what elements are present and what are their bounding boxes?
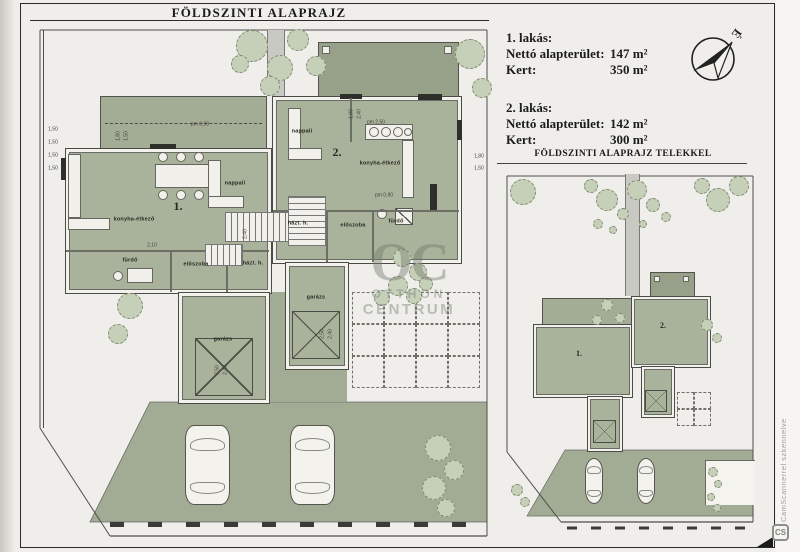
unit-number-label: 2.	[660, 322, 666, 330]
net-area-label: Nettó alapterület:	[506, 116, 610, 132]
info-row: Nettó alapterület: 142 m²	[506, 116, 696, 132]
room-label: házt. h.	[243, 261, 264, 267]
apartment2-info: 2. lakás: Nettó alapterület: 142 m² Kert…	[506, 100, 696, 148]
otthon-centrum-watermark: OC OTTHON CENTRUM	[348, 238, 470, 319]
oc-logo: OC	[348, 238, 470, 287]
room-label: garázs	[307, 295, 326, 301]
dimension-label: 1,50	[474, 167, 484, 172]
dimension-label: 1,50	[48, 128, 58, 133]
room-label: előszoba	[183, 262, 208, 268]
apartment2-name: 2. lakás:	[506, 100, 696, 116]
scanned-page: FÖLDSZINTI ALAPRAJZ 1.2.nappalikonyha-ét…	[0, 0, 800, 552]
garden-label: Kert:	[506, 132, 610, 148]
title-underline	[30, 20, 489, 21]
compass-icon: É	[686, 14, 754, 86]
room-label: garázs	[214, 337, 233, 343]
net-area-value: 142 m²	[610, 116, 647, 132]
main-floor-plan: 1.2.nappalikonyha-étkezőfürdőelőszobaház…	[30, 24, 492, 546]
dimension-label: pm 0,90	[191, 123, 209, 128]
dimension-label: 2,50	[321, 329, 326, 339]
room-label: nappali	[292, 129, 313, 135]
room-label: nappali	[225, 181, 246, 187]
site-plan-title: FÖLDSZINTI ALAPRAJZ TELEKKEL	[497, 149, 749, 159]
dimension-label: 2,40	[329, 329, 334, 339]
dimension-label: pm 2,50	[367, 121, 385, 126]
apartment1-info: 1. lakás: Nettó alapterület: 147 m² Kert…	[506, 30, 696, 78]
garden-value: 350 m²	[610, 62, 647, 78]
north-label: É	[729, 26, 745, 41]
page-title: FÖLDSZINTI ALAPRAJZ	[30, 5, 488, 21]
room-label: konyha-étkező	[114, 217, 155, 223]
unit-number-label: 2.	[333, 146, 342, 158]
oc-word-centrum: CENTRUM	[348, 301, 470, 319]
unit-number-label: 1.	[174, 200, 183, 212]
site-title-underline	[497, 163, 747, 164]
paper-edge-shadow	[0, 0, 20, 552]
dimension-label: 2,40	[358, 109, 363, 119]
room-label: házt. h.	[288, 221, 309, 227]
unit-number-label: 1.	[576, 350, 582, 358]
dimension-label: 1,50	[125, 131, 130, 141]
dimension-label: 1,80	[474, 155, 484, 160]
net-area-label: Nettó alapterület:	[506, 46, 610, 62]
room-label: konyha-étkező	[360, 161, 401, 167]
dimension-label: 1,50	[48, 141, 58, 146]
info-row: Kert: 300 m²	[506, 132, 696, 148]
dimension-label: 1,80	[350, 109, 355, 119]
dimension-label: 1,50	[48, 154, 58, 159]
apartment1-name: 1. lakás:	[506, 30, 696, 46]
info-row: Kert: 350 m²	[506, 62, 696, 78]
dimension-label: pm 0,90	[375, 194, 393, 199]
dimension-label: 2,50	[216, 365, 221, 375]
scan-corner-artifact	[757, 537, 773, 547]
dimension-label: 2,40	[244, 229, 249, 239]
room-label: fürdő	[122, 258, 137, 264]
dimension-label: 1,50	[48, 167, 58, 172]
dimension-label: 1,80	[117, 131, 122, 141]
camscanner-logo: CS	[772, 524, 789, 541]
site-plan: 1.2.	[503, 172, 757, 536]
camscanner-watermark: CamScannerrel szkennelve	[779, 388, 788, 522]
garden-label: Kert:	[506, 62, 610, 78]
site-label-layer: 1.2.	[503, 172, 757, 536]
room-label: fürdő	[388, 219, 403, 225]
info-row: Nettó alapterület: 147 m²	[506, 46, 696, 62]
room-label: előszoba	[340, 223, 365, 229]
dimension-label: 2,10	[147, 244, 157, 249]
oc-word-otthon: OTTHON	[348, 287, 470, 301]
dimension-label: 2,40	[224, 365, 229, 375]
garden-value: 300 m²	[610, 132, 647, 148]
net-area-value: 147 m²	[610, 46, 647, 62]
